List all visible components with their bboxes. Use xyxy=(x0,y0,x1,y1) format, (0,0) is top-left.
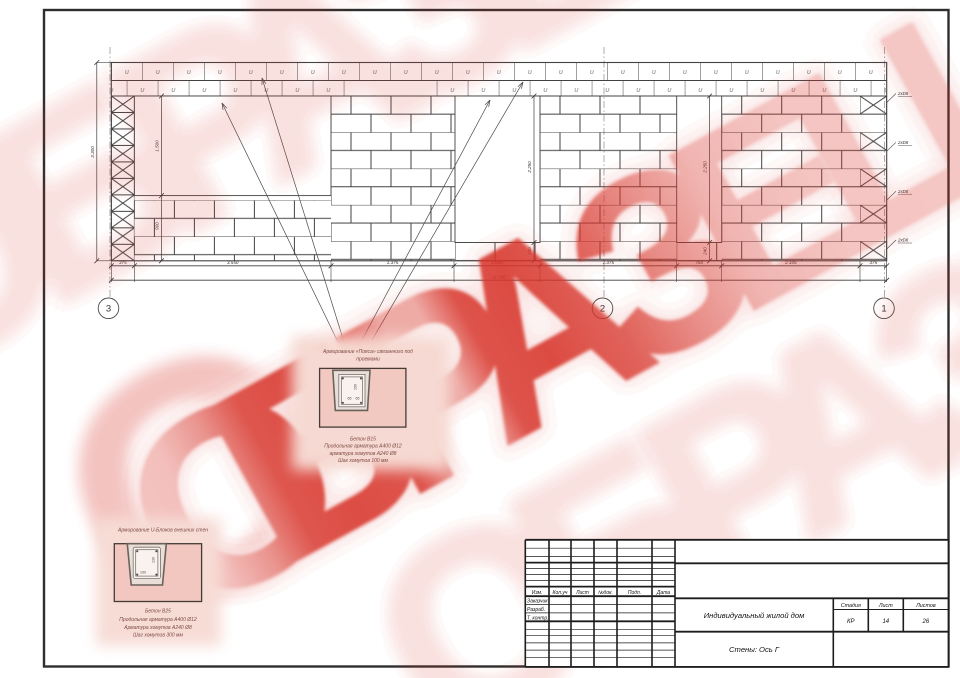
svg-text:Листов: Листов xyxy=(915,603,936,609)
svg-text:Стены: Ось Г: Стены: Ось Г xyxy=(729,645,780,654)
svg-text:Лист: Лист xyxy=(878,603,893,609)
svg-text:65: 65 xyxy=(348,397,352,401)
svg-text:190: 190 xyxy=(140,571,146,575)
svg-text:Бетон В15: Бетон В15 xyxy=(350,437,376,443)
svg-text:Бетон В25: Бетон В25 xyxy=(145,609,171,615)
svg-text:Шаг хомутов 300 мм: Шаг хомутов 300 мм xyxy=(133,632,183,638)
svg-text:Заказчик: Заказчик xyxy=(527,599,548,605)
svg-text:Лист: Лист xyxy=(575,590,589,596)
svg-text:Шаг хомутов 100 мм: Шаг хомутов 100 мм xyxy=(338,458,388,464)
svg-text:проемами: проемами xyxy=(356,357,380,363)
svg-text:Продольная арматура А400 Ø12: Продольная арматура А400 Ø12 xyxy=(324,444,402,450)
svg-text:арматура хомутов А240 Ø8: арматура хомутов А240 Ø8 xyxy=(330,451,397,457)
svg-text:Т. контр.: Т. контр. xyxy=(527,615,549,621)
svg-text:Армирование U-Блоков внешних с: Армирование U-Блоков внешних стен xyxy=(117,528,208,534)
svg-text:Продольная арматура А400 Ø12: Продольная арматура А400 Ø12 xyxy=(119,617,197,623)
svg-text:Армирование «Пояса» связанного: Армирование «Пояса» связанного под xyxy=(322,349,413,355)
svg-text:Арматура хомутов А240 Ø8: Арматура хомутов А240 Ø8 xyxy=(123,625,192,631)
svg-text:Индивидуальный жилой дом: Индивидуальный жилой дом xyxy=(704,611,805,620)
svg-text:150: 150 xyxy=(354,384,358,390)
svg-text:Стадия: Стадия xyxy=(841,603,861,609)
svg-text:Подп.: Подп. xyxy=(628,590,641,596)
svg-text:Изм.: Изм. xyxy=(532,590,543,596)
svg-text:Разраб.: Разраб. xyxy=(527,607,545,613)
svg-text:130: 130 xyxy=(152,557,156,563)
svg-text:65: 65 xyxy=(356,397,360,401)
svg-text:№док.: №док. xyxy=(598,590,613,596)
svg-text:Дата: Дата xyxy=(656,590,670,596)
svg-text:26: 26 xyxy=(922,619,930,625)
svg-text:КР: КР xyxy=(847,619,855,625)
svg-text:14: 14 xyxy=(882,619,889,625)
svg-text:Кол.уч: Кол.уч xyxy=(553,590,568,596)
